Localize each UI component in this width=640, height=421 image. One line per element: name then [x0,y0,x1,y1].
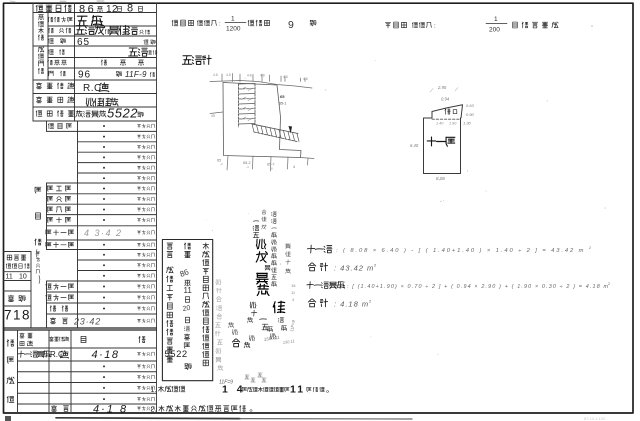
svg-text:4-8: 4-8 [213,73,218,77]
svg-text:65: 65 [77,37,90,48]
svg-text:200: 200 [489,27,500,34]
svg-text:0.63: 0.63 [466,103,475,108]
svg-text:-4: -4 [246,165,249,169]
svg-text:1200: 1200 [226,26,241,33]
svg-text:4·1 8: 4·1 8 [93,404,128,416]
svg-text:4-8: 4-8 [260,74,265,78]
svg-text:1.30: 1.30 [463,121,472,126]
svg-text:1.90: 1.90 [449,122,457,126]
svg-text:718: 718 [4,308,31,323]
svg-text:: [ (1.40+1.90) × 0.70 ÷ 2 ] +: : [ (1.40+1.90) × 0.70 ÷ 2 ] + ( 0.94 × … [347,284,609,290]
svg-text:150.11: 150.11 [282,338,295,345]
svg-text:8: 8 [127,3,133,15]
svg-text:-8: -8 [270,167,273,171]
svg-text:2: 2 [589,246,591,250]
svg-text:11F=9: 11F=9 [219,380,233,386]
svg-text:-0: -0 [220,162,223,166]
svg-text:23·42: 23·42 [73,317,101,327]
svg-text:4: 4 [293,165,295,169]
svg-text:4: 4 [292,297,295,302]
svg-text:11F-9: 11F-9 [125,70,147,79]
svg-text:11: 11 [6,274,13,281]
svg-text::: : [434,24,436,30]
svg-text:2.: 2. [151,407,157,414]
svg-text:2: 2 [374,263,377,268]
svg-text:20: 20 [182,305,191,313]
svg-text:4·18: 4·18 [92,349,120,361]
svg-text:2: 2 [369,299,372,304]
svg-text:0.90: 0.90 [466,112,475,117]
svg-text:R.C: R.C [83,83,102,94]
svg-text:96: 96 [78,70,91,81]
svg-text:11: 11 [290,384,305,396]
svg-text:2.90: 2.90 [437,85,447,90]
svg-text:: ( 8.08 × 6.40 ) - [ ( 1.40+1: : ( 8.08 × 6.40 ) - [ ( 1.40+1.40 ) × 1.… [336,248,585,254]
svg-text:11: 11 [184,286,193,295]
svg-text:86: 86 [179,267,191,279]
svg-text:86: 86 [79,3,96,15]
svg-text:65-1: 65-1 [279,102,286,106]
svg-text:4-8: 4-8 [226,73,231,77]
svg-text:11F=9: 11F=9 [289,319,296,332]
svg-text:10: 10 [19,274,27,281]
svg-text:12: 12 [106,4,118,15]
svg-text:8.08: 8.08 [436,176,445,181]
svg-text::: : [219,22,221,28]
svg-text:5522: 5522 [107,106,138,121]
svg-text:45: 45 [211,114,215,118]
svg-text:87.10.1-102: 87.10.1-102 [584,416,606,421]
svg-text:4-8: 4-8 [303,77,308,81]
svg-text:1: 1 [494,16,498,23]
svg-text:: 43.42 m: : 43.42 m [334,264,374,273]
svg-text:: 4.18 m: : 4.18 m [334,300,369,309]
svg-text:1580.11: 1580.11 [263,335,280,342]
svg-text:1.40: 1.40 [436,122,444,126]
svg-text:11: 11 [291,290,296,295]
svg-text:4-8: 4-8 [283,75,288,79]
svg-text:4 3·4 2: 4 3·4 2 [84,228,123,238]
svg-text:18: 18 [291,283,296,288]
svg-text:6.40: 6.40 [410,143,419,148]
svg-text:65: 65 [280,94,285,99]
svg-text:1: 1 [231,16,235,23]
svg-text:0.94: 0.94 [441,97,450,102]
svg-text:2: 2 [608,282,610,286]
svg-text:1.: 1. [151,387,157,394]
svg-text:9: 9 [288,19,294,31]
svg-text:4-8: 4-8 [247,74,252,78]
